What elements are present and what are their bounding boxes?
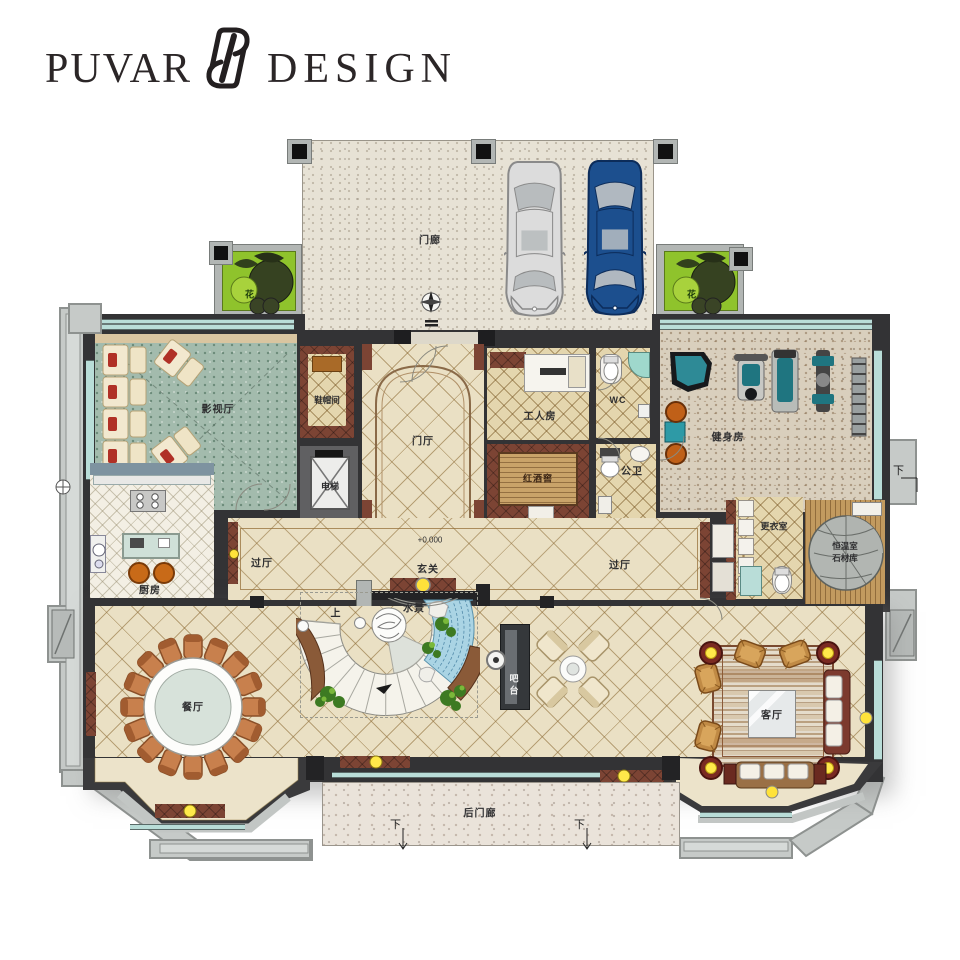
- svg-text:下: 下: [390, 819, 401, 831]
- svg-text:下: 下: [893, 465, 904, 477]
- svg-text:下: 下: [574, 819, 585, 831]
